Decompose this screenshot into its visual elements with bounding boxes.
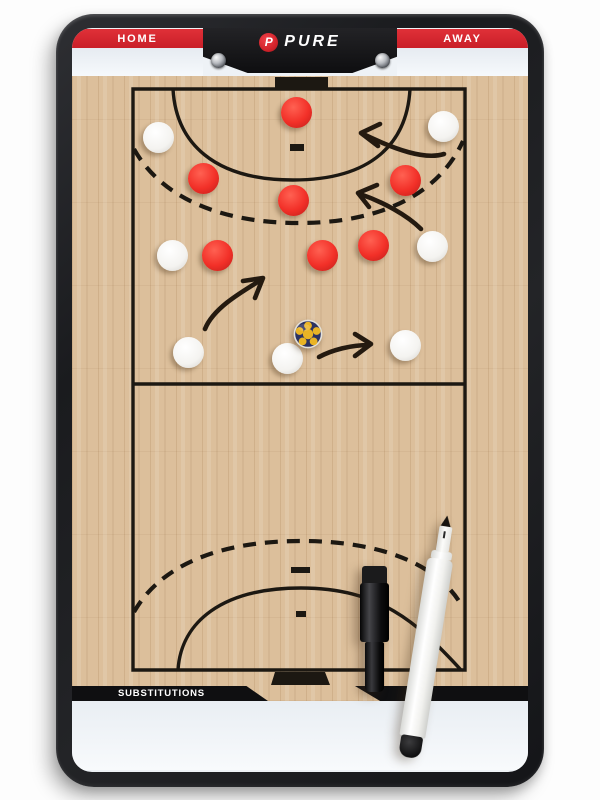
pen-nib <box>435 525 452 553</box>
red-player-magnet[interactable] <box>278 185 309 216</box>
substitutions-bar: SUBSTITUTIONS <box>72 686 268 701</box>
away-label-bar: AWAY <box>397 29 528 48</box>
red-player-magnet[interactable] <box>390 165 421 196</box>
pen-end-cap <box>398 734 423 759</box>
marker-barrel <box>365 642 384 692</box>
substitutions-label: SUBSTITUTIONS <box>118 688 205 699</box>
away-label: AWAY <box>443 33 482 45</box>
board-frame: HOME AWAY P PURE SUBSTITUTIONS <box>56 14 544 787</box>
white-player-magnet[interactable] <box>143 122 174 153</box>
ball-magnet[interactable] <box>293 319 323 349</box>
brand-p-icon: P <box>259 33 278 52</box>
substitutions-writing-area[interactable] <box>72 701 528 770</box>
marker-body <box>360 583 389 642</box>
red-player-magnet[interactable] <box>281 97 312 128</box>
red-player-magnet[interactable] <box>202 240 233 271</box>
home-label-bar: HOME <box>72 29 203 48</box>
screw-icon <box>211 53 226 68</box>
home-label: HOME <box>117 33 157 45</box>
white-player-magnet[interactable] <box>390 330 421 361</box>
black-marker-pen[interactable] <box>360 566 389 692</box>
product-photo: HOME AWAY P PURE SUBSTITUTIONS <box>0 0 600 800</box>
red-player-magnet[interactable] <box>358 230 389 261</box>
brand-logo: P PURE <box>203 31 397 53</box>
screw-icon <box>375 53 390 68</box>
red-player-magnet[interactable] <box>188 163 219 194</box>
marker-felt-tip <box>362 566 387 584</box>
home-writing-panel[interactable] <box>72 48 203 76</box>
wood-court-background <box>72 76 528 701</box>
red-player-magnet[interactable] <box>307 240 338 271</box>
white-player-magnet[interactable] <box>173 337 204 368</box>
board-surface: HOME AWAY P PURE SUBSTITUTIONS <box>72 28 528 772</box>
brand-wordmark: PURE <box>284 33 340 51</box>
white-player-magnet[interactable] <box>157 240 188 271</box>
away-writing-panel[interactable] <box>397 48 528 76</box>
white-player-magnet[interactable] <box>417 231 448 262</box>
white-player-magnet[interactable] <box>428 111 459 142</box>
